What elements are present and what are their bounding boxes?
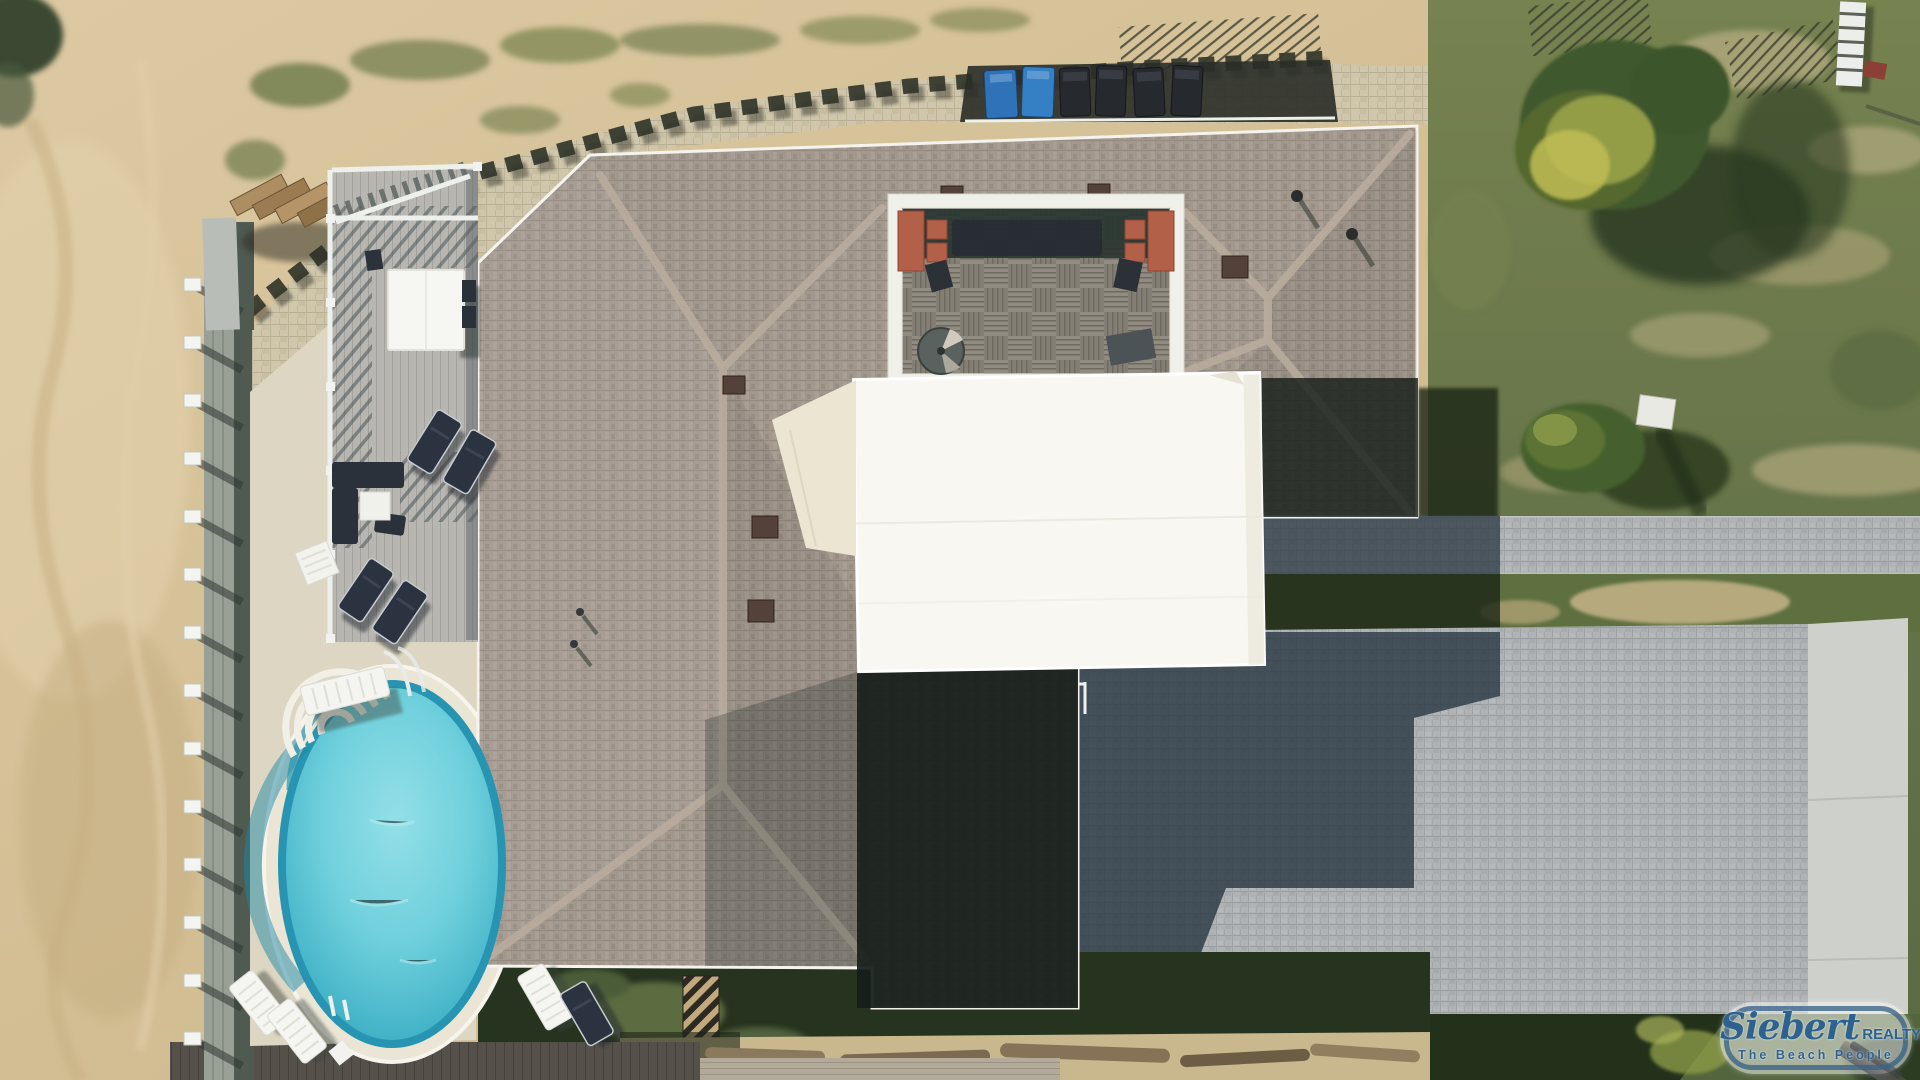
boardwalk-light xyxy=(700,1058,1060,1080)
navy-sofa xyxy=(952,220,1102,256)
spiral-staircase xyxy=(918,328,964,374)
watermark-brand-suffix: REALTY xyxy=(1862,1026,1920,1043)
watermark-brand: Siebert xyxy=(1720,1006,1859,1048)
rooftop-courtyard xyxy=(888,194,1184,386)
watermark-brand-row: SiebertREALTY xyxy=(1720,1008,1912,1046)
deck-chair xyxy=(462,280,476,302)
dune-walkover-ladder xyxy=(1836,1,1875,93)
watermark-tagline: The Beach People xyxy=(1720,1048,1912,1062)
trash-bin-area xyxy=(960,60,1338,122)
concrete-driveway xyxy=(1808,618,1908,1014)
scene-canvas xyxy=(0,0,1920,1080)
realty-watermark: SiebertREALTY The Beach People xyxy=(1720,1002,1912,1074)
deck-chair xyxy=(462,306,476,328)
lawn-shadow-strip xyxy=(1418,388,1498,518)
aerial-photo-beach-house: SiebertREALTY The Beach People xyxy=(0,0,1920,1080)
deck-chair xyxy=(365,249,384,271)
white-canopy-roof xyxy=(853,370,1264,671)
